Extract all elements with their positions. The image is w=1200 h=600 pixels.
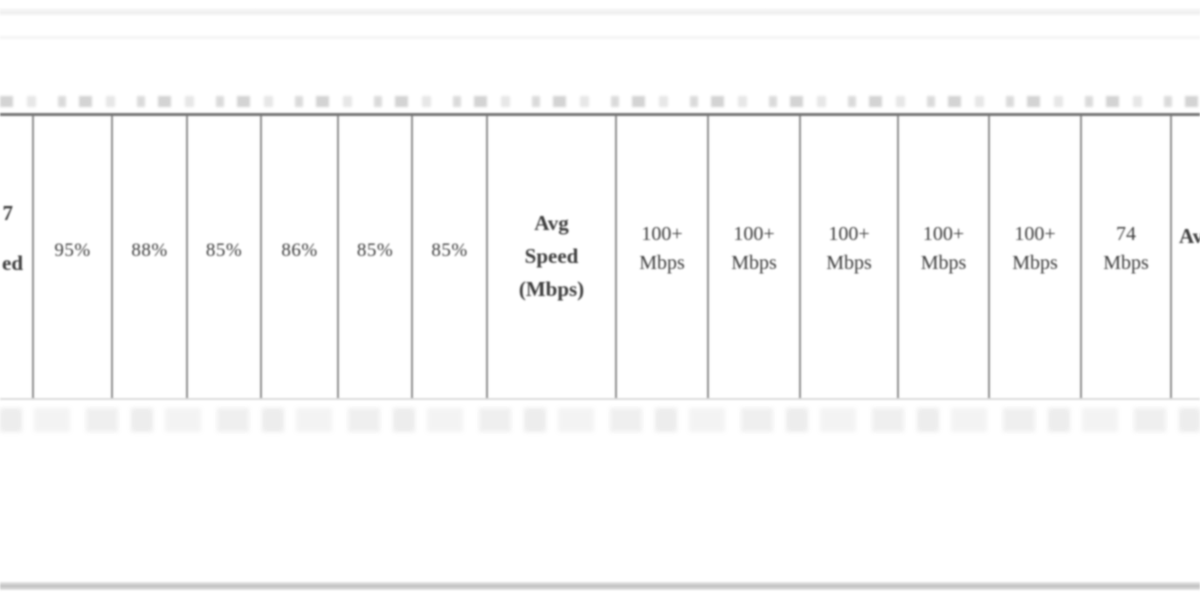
- bottom-gray-rule: [0, 582, 1200, 590]
- percent-value: 85%: [357, 240, 393, 262]
- clipped-text-remnants: [0, 96, 1200, 107]
- speed-value-line2: Mbps: [731, 249, 777, 278]
- speed-value-line2: Mbps: [921, 249, 967, 278]
- partial-header-fragment-right: Av: [1179, 224, 1200, 249]
- data-table: 7 ed 95% 88% 85% 86% 85% 85% Avg: [0, 113, 1200, 400]
- speed-value-line1: 100+: [641, 220, 682, 249]
- table-cell-partial-right-header: Av: [1170, 116, 1200, 398]
- speed-value-line2: Mbps: [639, 249, 685, 278]
- table-cell-percent: 95%: [32, 116, 111, 398]
- percent-value: 95%: [54, 240, 90, 262]
- speed-value-line1: 100+: [923, 220, 964, 249]
- speed-value-line1: 100+: [733, 220, 774, 249]
- percent-value: 86%: [281, 240, 317, 262]
- partial-header-fragment-line2: ed: [2, 251, 23, 276]
- table-cell-speed-value: 100+ Mbps: [897, 116, 988, 398]
- table-cell-percent: 86%: [260, 116, 337, 398]
- table-cell-speed-value: 100+ Mbps: [988, 116, 1080, 398]
- speed-value-line1: 100+: [1014, 220, 1055, 249]
- avg-speed-header-line3: (Mbps): [519, 273, 584, 306]
- speed-value-line2: Mbps: [826, 249, 872, 278]
- faint-rule-top-2: [0, 35, 1200, 40]
- table-cell-percent: 85%: [186, 116, 260, 398]
- table-cell-speed-value: 74 Mbps: [1080, 116, 1170, 398]
- table-cell-speed-value: 100+ Mbps: [799, 116, 897, 398]
- avg-speed-header-line1: Avg: [534, 207, 569, 240]
- table-cell-speed-value: 100+ Mbps: [615, 116, 707, 398]
- table-cell-percent: 85%: [337, 116, 411, 398]
- faint-rule-top-1: [0, 8, 1200, 16]
- table-cell-speed-value: 100+ Mbps: [707, 116, 799, 398]
- speed-value-line2: Mbps: [1103, 249, 1149, 278]
- speed-value-line1: 100+: [828, 220, 869, 249]
- table-cell-partial-left-header: 7 ed: [0, 116, 32, 398]
- table-cell-avg-speed-header: Avg Speed (Mbps): [486, 116, 615, 398]
- percent-value: 85%: [431, 240, 467, 262]
- table-cell-percent: 88%: [111, 116, 186, 398]
- document-screenshot: 7 ed 95% 88% 85% 86% 85% 85% Avg: [0, 0, 1200, 600]
- speed-value-line2: Mbps: [1012, 249, 1058, 278]
- avg-speed-header-line2: Speed: [525, 240, 579, 273]
- illegible-text-row: [0, 408, 1200, 432]
- percent-value: 85%: [206, 240, 242, 262]
- percent-value: 88%: [131, 240, 167, 262]
- speed-value-line1: 74: [1116, 220, 1136, 249]
- partial-header-fragment-line1: 7: [3, 201, 14, 226]
- table-cell-percent: 85%: [411, 116, 486, 398]
